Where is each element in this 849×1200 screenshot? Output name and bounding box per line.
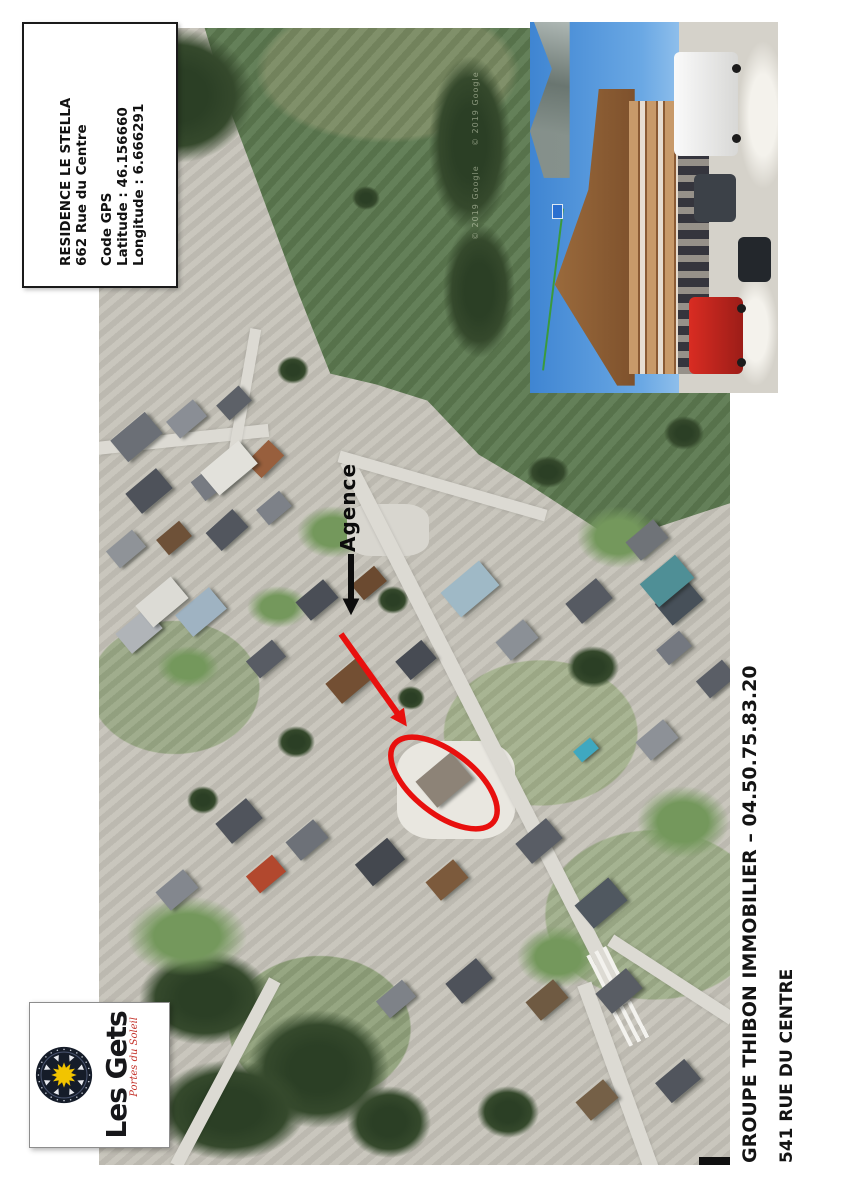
- map-building: [655, 1059, 701, 1103]
- map-building: [256, 491, 292, 526]
- red-car: [689, 297, 744, 375]
- gps-longitude: Longitude : 6.666291: [131, 24, 147, 266]
- map-tree: [347, 1086, 431, 1158]
- map-tree: [397, 686, 425, 710]
- map-watermark: © 2019 Google: [471, 71, 480, 146]
- map-building: [246, 855, 286, 894]
- map-building: [215, 798, 262, 844]
- map-building: [441, 561, 500, 618]
- map-corner-mark: [699, 1157, 730, 1165]
- map-building: [565, 578, 612, 624]
- map-lawn: [127, 896, 247, 976]
- residence-name: RESIDENCE LE STELLA: [58, 24, 74, 266]
- chalet-photo-inset: [530, 22, 778, 393]
- map-building: [656, 631, 692, 666]
- map-watermark: © 2019 Google: [471, 165, 480, 240]
- map-tree: [277, 356, 309, 384]
- map-building: [575, 1079, 618, 1121]
- chalet-roof: [555, 89, 635, 386]
- map-building: [425, 859, 468, 901]
- map-tree: [477, 1086, 539, 1138]
- map-tree: [187, 786, 219, 814]
- map-building: [635, 719, 678, 761]
- map-building: [285, 819, 328, 861]
- white-car: [674, 52, 738, 156]
- map-building: [156, 521, 192, 556]
- map-building: [246, 640, 286, 679]
- map-building: [696, 660, 730, 699]
- scanned-location-document: © 2019 Google © 2019 Google Agence RESID…: [0, 0, 849, 1200]
- les-gets-logo: Les Gets Portes du Soleil: [30, 1003, 169, 1147]
- map-lawn: [157, 646, 219, 688]
- residence-address: 662 Rue du Centre: [74, 24, 90, 266]
- map-building: [376, 980, 416, 1019]
- agency-contact-line: GROUPE THIBON IMMOBILIER – 04.50.75.83.2…: [739, 665, 761, 1163]
- property-info-text: RESIDENCE LE STELLA 662 Rue du Centre Co…: [24, 24, 176, 286]
- map-building: [355, 838, 405, 886]
- spacer: [90, 24, 99, 266]
- map-building: [110, 412, 162, 462]
- snow-patch: [738, 41, 778, 189]
- map-lawn: [637, 786, 729, 858]
- map-tree: [277, 726, 315, 758]
- les-gets-logo-box: Les Gets Portes du Soleil: [29, 1002, 170, 1148]
- map-building: [325, 658, 372, 704]
- chalet-photo-content: [530, 22, 778, 393]
- car-wheel: [737, 358, 746, 367]
- dark-car: [694, 174, 736, 222]
- gps-heading: Code GPS: [99, 24, 115, 266]
- dark-car: [738, 237, 770, 282]
- map-building: [445, 958, 492, 1004]
- map-building: [125, 468, 172, 514]
- map-building: [495, 619, 538, 661]
- map-building: [206, 509, 249, 551]
- property-info-box: RESIDENCE LE STELLA 662 Rue du Centre Co…: [22, 22, 178, 288]
- sun-emblem-icon: [34, 1045, 94, 1105]
- gps-latitude: Latitude : 46.156660: [115, 24, 131, 266]
- agence-label: Agence: [336, 463, 360, 552]
- map-building: [395, 640, 436, 680]
- map-building: [106, 530, 146, 569]
- map-tree: [567, 646, 619, 688]
- map-building: [573, 738, 599, 763]
- agency-address-line: 541 RUE DU CENTRE: [777, 969, 797, 1163]
